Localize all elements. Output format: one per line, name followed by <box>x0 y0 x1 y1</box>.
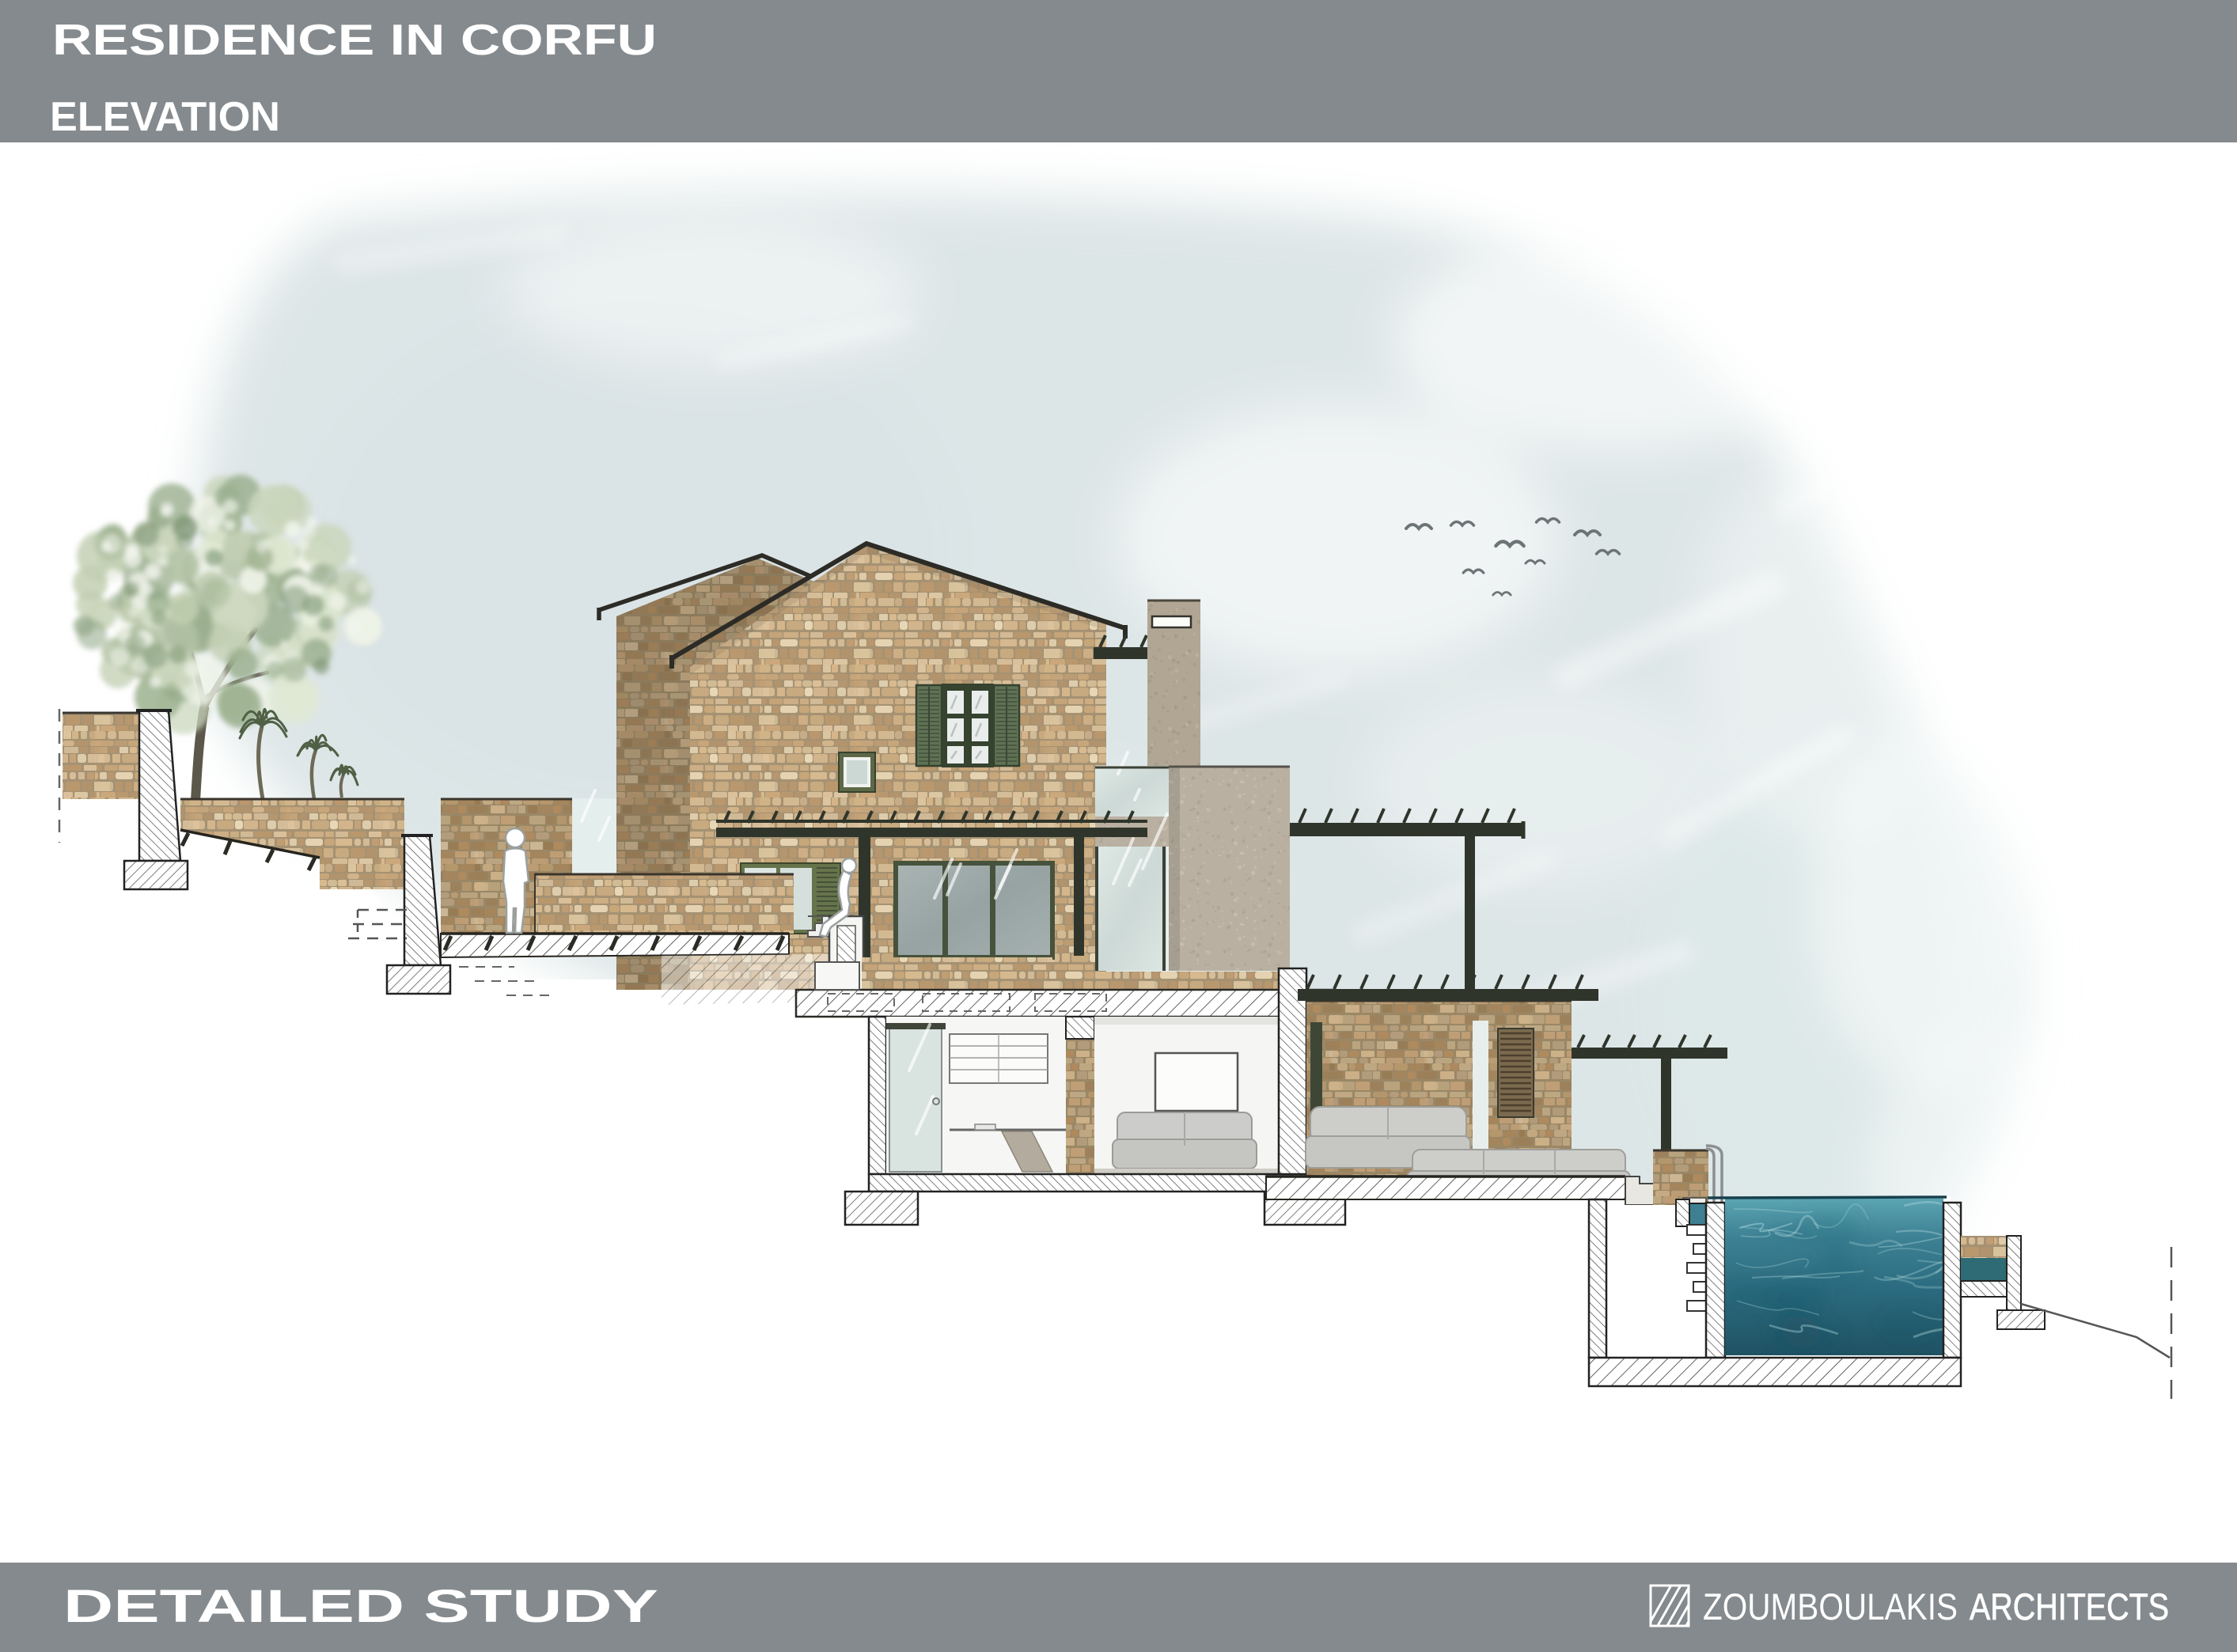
svg-text:RESIDENCE IN CORFU: RESIDENCE IN CORFU <box>52 15 657 64</box>
svg-text:ARCHITECTS: ARCHITECTS <box>1970 1586 2169 1627</box>
svg-text:DETAILED STUDY: DETAILED STUDY <box>63 1581 658 1632</box>
svg-text:ELEVATION: ELEVATION <box>50 94 280 140</box>
svg-text:ZOUMBOULAKIS: ZOUMBOULAKIS <box>1703 1586 1958 1627</box>
